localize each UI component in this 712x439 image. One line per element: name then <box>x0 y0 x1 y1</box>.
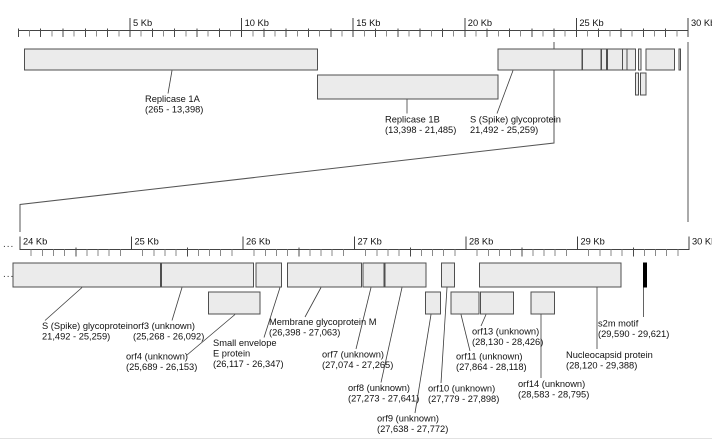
orf8-label-line-2: (27,273 - 27,641) <box>348 394 419 404</box>
s2m-motif-label-line-1: s2m motif <box>598 319 639 329</box>
orf10-label: orf10 (unknown)(27,779 - 27,898) <box>428 384 499 405</box>
s2m-motif-label: s2m motif(29,590 - 29,621) <box>598 319 669 340</box>
orf3-leader-line <box>172 288 182 321</box>
bottom-ruler-tick-label-28kb: 28 Kb <box>469 237 493 247</box>
bottom-track-labels: S (Spike) glycoprotein21,492 - 25,259)or… <box>42 288 669 435</box>
top-ruler-tick-label-25kb: 25 Kb <box>579 18 603 28</box>
bottom-ruler-tick-label-26kb: 26 Kb <box>246 237 270 247</box>
bottom-ruler-tick-label-27kb: 27 Kb <box>358 237 382 247</box>
bottom-ruler-tick-label-29kb: 29 Kb <box>581 237 605 247</box>
orf13-leader-line <box>481 315 486 327</box>
orf9-box-top <box>635 73 638 95</box>
s2m-motif-box-bottom <box>643 263 646 287</box>
nucleocapsid-label-line-1: Nucleocapsid protein <box>566 350 653 360</box>
s-glycoprotein-leader-line <box>497 71 513 114</box>
replicase-1a-label: Replicase 1A(265 - 13,398) <box>145 94 203 115</box>
m-protein-label: Membrane glycoprotein M(26,398 - 27,063) <box>269 317 376 338</box>
orf8-box-bottom <box>385 263 426 287</box>
top-ruler: 5 Kb10 Kb15 Kb20 Kb25 Kb30 Kb <box>18 18 712 37</box>
nucleocapsid-box-top <box>646 49 674 70</box>
m-protein-box-bottom <box>287 263 361 287</box>
bottom-ruler-tick-label-30kb: 30 Kb <box>692 237 712 247</box>
orf13-box-bottom <box>480 292 513 314</box>
orf14-label: orf14 (unknown)(28,583 - 28,795) <box>518 379 589 400</box>
orf7-label: orf7 (unknown)(27,074 - 27,265) <box>322 350 393 371</box>
top-ruler-tick-label-5kb: 5 Kb <box>133 18 152 28</box>
orf11-label-line-1: orf11 (unknown) <box>456 352 523 362</box>
s-glycoprotein-label-line-1: S (Spike) glycoprotein <box>470 115 561 125</box>
genome-map-svg: 5 Kb10 Kb15 Kb20 Kb25 Kb30 Kb24 Kb25 Kb2… <box>0 0 712 439</box>
orf7-box-top <box>623 49 627 70</box>
m-protein-leader-line <box>305 288 321 318</box>
orf9-box-bottom <box>426 292 441 314</box>
genome-map-figure: 5 Kb10 Kb15 Kb20 Kb25 Kb30 Kb24 Kb25 Kb2… <box>0 0 712 439</box>
top-track <box>24 49 680 99</box>
nucleocapsid-label-line-2: (28,120 - 29,388) <box>566 361 637 371</box>
bottom-ruler: 24 Kb25 Kb26 Kb27 Kb28 Kb29 Kb30 Kb <box>20 237 712 257</box>
orf4-label: orf4 (unknown)(25,689 - 26,153) <box>126 352 197 373</box>
orf14-label-line-2: (28,583 - 28,795) <box>518 390 589 400</box>
top-ruler-tick-label-15kb: 15 Kb <box>356 18 380 28</box>
orf10-leader-line <box>441 288 447 384</box>
orf3-label-line-1: orf3 (unknown) <box>133 321 195 331</box>
orf13-label-line-1: orf13 (unknown) <box>472 327 539 337</box>
s2m-motif-label-line-2: (29,590 - 29,621) <box>598 329 669 339</box>
top-ruler-tick-label-10kb: 10 Kb <box>245 18 269 28</box>
nucleocapsid-box-bottom <box>479 263 620 287</box>
replicase-1b-label-line-1: Replicase 1B <box>385 115 440 125</box>
replicase-1a-box-top <box>24 49 317 70</box>
replicase-1a-label-line-2: (265 - 13,398) <box>145 105 203 115</box>
bottom-track <box>13 263 647 314</box>
nucleocapsid-label: Nucleocapsid protein(28,120 - 29,388) <box>566 350 653 371</box>
orf7-label-line-2: (27,074 - 27,265) <box>322 360 393 370</box>
orf7-box-bottom <box>363 263 384 287</box>
orf4-label-line-1: orf4 (unknown) <box>126 352 188 362</box>
s-glycoprotein-box-top <box>498 49 582 70</box>
orf11-leader-line <box>461 315 470 352</box>
bottom-ruler-tick-label-24kb: 24 Kb <box>23 237 47 247</box>
s-glycoprotein-label: S (Spike) glycoprotein21,492 - 25,259) <box>470 115 561 136</box>
e-protein-box-bottom <box>256 263 282 287</box>
e-protein-box-top <box>601 49 606 70</box>
s-glycoprotein-label-line-2: 21,492 - 25,259) <box>42 332 110 342</box>
orf10-label-line-1: orf10 (unknown) <box>428 384 495 394</box>
e-protein-label-line-2: E protein <box>213 349 250 359</box>
orf11-box-top <box>640 73 646 95</box>
replicase-1a-leader-line <box>168 71 172 94</box>
bottom-track-continuation-ellipsis: ... <box>3 269 14 280</box>
orf8-box-top <box>627 49 635 70</box>
replicase-1a-label-line-1: Replicase 1A <box>145 94 201 104</box>
s-glycoprotein-box-bottom <box>13 263 160 287</box>
replicase-1b-label-line-2: (13,398 - 21,485) <box>385 125 456 135</box>
s2m-motif-box-top <box>679 49 681 70</box>
orf13-label-line-2: (28,130 - 28,426) <box>472 337 543 347</box>
e-protein-label-line-1: Small envelope <box>213 338 277 348</box>
orf13-label: orf13 (unknown)(28,130 - 28,426) <box>472 327 543 348</box>
orf14-box-bottom <box>531 292 555 314</box>
e-protein-label-line-3: (26,117 - 26,347) <box>213 359 284 369</box>
orf11-label: orf11 (unknown)(27,864 - 28,118) <box>456 352 527 373</box>
bottom-ruler-continuation-ellipsis: ... <box>3 239 14 250</box>
orf9-label: orf9 (unknown)(27,638 - 27,772) <box>377 414 448 435</box>
m-protein-label-line-2: (26,398 - 27,063) <box>269 328 340 338</box>
top-ruler-tick-label-30kb: 30 Kb <box>691 18 712 28</box>
orf10-label-line-2: (27,779 - 27,898) <box>428 394 499 404</box>
orf8-label-line-1: orf8 (unknown) <box>348 383 410 393</box>
orf9-label-line-1: orf9 (unknown) <box>377 414 439 424</box>
replicase-1b-label: Replicase 1B(13,398 - 21,485) <box>385 115 456 136</box>
orf3-box-top <box>582 49 600 70</box>
replicase-1b-box-top <box>317 75 498 99</box>
orf11-label-line-2: (27,864 - 28,118) <box>456 362 527 372</box>
s-glycoprotein-label: S (Spike) glycoprotein21,492 - 25,259) <box>42 321 133 342</box>
orf3-box-bottom <box>161 263 253 287</box>
orf9-label-line-2: (27,638 - 27,772) <box>377 424 448 434</box>
orf7-label-line-1: orf7 (unknown) <box>322 350 384 360</box>
m-protein-box-top <box>608 49 623 70</box>
orf10-box-top <box>638 49 641 70</box>
orf4-box-bottom <box>208 292 260 314</box>
orf3-label-line-2: (25,268 - 26,092) <box>133 332 204 342</box>
orf3-label: orf3 (unknown)(25,268 - 26,092) <box>133 321 204 342</box>
orf10-box-bottom <box>441 263 454 287</box>
orf8-label: orf8 (unknown)(27,273 - 27,641) <box>348 383 419 404</box>
s-glycoprotein-label-line-2: 21,492 - 25,259) <box>470 125 538 135</box>
bottom-ruler-tick-label-25kb: 25 Kb <box>135 237 159 247</box>
m-protein-label-line-1: Membrane glycoprotein M <box>269 317 376 327</box>
top-ruler-tick-label-20kb: 20 Kb <box>468 18 492 28</box>
e-protein-label: Small envelopeE protein(26,117 - 26,347) <box>213 338 284 369</box>
s-glycoprotein-leader-line <box>45 288 82 321</box>
orf14-label-line-1: orf14 (unknown) <box>518 379 585 389</box>
orf11-box-bottom <box>451 292 479 314</box>
s-glycoprotein-label-line-1: S (Spike) glycoprotein <box>42 321 133 331</box>
orf4-label-line-2: (25,689 - 26,153) <box>126 362 197 372</box>
